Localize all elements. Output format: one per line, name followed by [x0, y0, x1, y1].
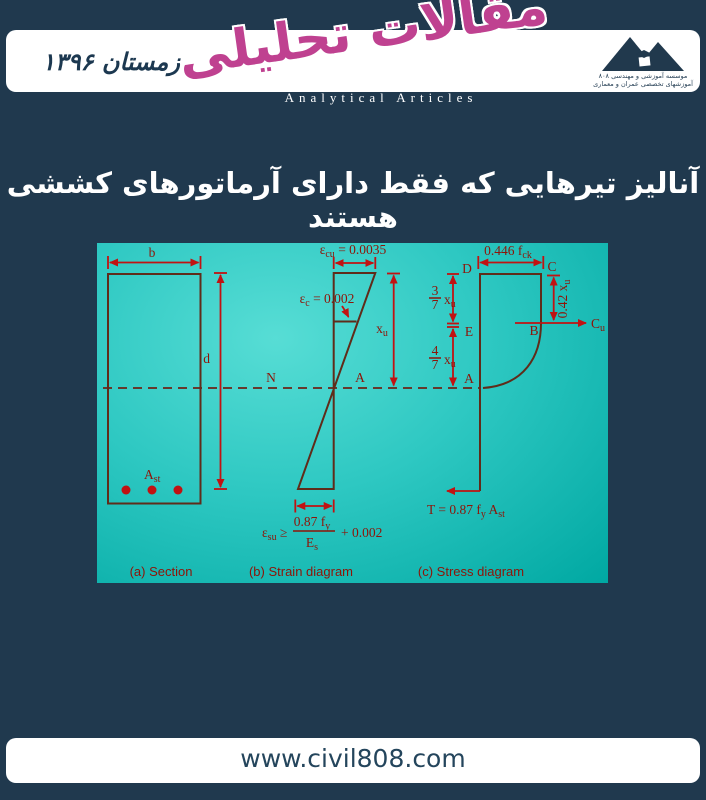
org-name-line2: آموزشهای تخصصی عمران و معماری — [584, 81, 702, 89]
esu-tail: + 0.002 — [341, 525, 382, 540]
cu-label: Cu — [591, 316, 605, 334]
xu-dimension — [387, 274, 400, 386]
d-point-label: D — [462, 261, 472, 276]
stress-caption: (c) Stress diagram — [418, 564, 524, 579]
article-title: آنالیز تیرهایی که فقط دارای آرماتورهای ک… — [0, 166, 706, 234]
esu-formula: εsu ≥ 0.87 fy Es + 0.002 — [262, 514, 382, 553]
ec-pointer-arrow — [342, 306, 349, 317]
strain-caption: (b) Strain diagram — [249, 564, 353, 579]
b-label: b — [149, 245, 156, 260]
rebar-dots — [122, 486, 183, 495]
n-point-label: N — [266, 370, 276, 385]
xu47-numerator: 4 — [432, 343, 439, 358]
t-label: T = 0.87 fy Ast — [427, 502, 505, 520]
section-caption: (a) Section — [130, 564, 193, 579]
stress-block-shape — [480, 274, 541, 491]
b-point-label: B — [529, 323, 538, 338]
d-label: d — [203, 351, 210, 366]
mountains-icon — [600, 33, 686, 73]
xu47-xu: xu — [444, 352, 456, 370]
esu-frac-numerator: 0.87 fy — [294, 514, 331, 532]
a-point-label-strain: A — [355, 370, 365, 385]
e-point-label: E — [465, 324, 473, 339]
xu47-label: 4 7 xu — [429, 343, 456, 372]
xu47-denominator: 7 — [432, 357, 439, 372]
esu-symbol: εsu ≥ — [262, 525, 287, 543]
civil808-logo: موسسه آموزشی و مهندسی ۸۰۸ آموزشهای تخصصی… — [584, 33, 702, 89]
ecu-dimension — [334, 257, 376, 269]
ecu-label: εcu = 0.0035 — [320, 243, 387, 260]
c-point-label: C — [547, 259, 556, 274]
xu37-xu: xu — [444, 292, 456, 310]
diagram-svg: b d Ast (a) Section εcu = 0.0035 εc = 0.… — [97, 243, 608, 583]
xu37-numerator: 3 — [432, 283, 439, 298]
ast-label: Ast — [144, 467, 161, 485]
ec-label: εc = 0.002 — [300, 291, 355, 309]
xu042-label: 0.42 xu — [555, 280, 573, 319]
fck-label: 0.446 fck — [484, 243, 532, 261]
issue-date: زمستان ۱۳۹۶ — [42, 40, 180, 84]
xu37-label: 3 7 xu — [429, 283, 456, 312]
xu37-denominator: 7 — [432, 297, 439, 312]
magazine-logo-subtitle: Analytical Articles — [28, 90, 706, 106]
xu-label: xu — [376, 321, 388, 339]
beam-analysis-diagram: b d Ast (a) Section εcu = 0.0035 εc = 0.… — [97, 243, 608, 583]
d-dimension — [214, 273, 227, 489]
a-point-label-stress: A — [464, 371, 474, 386]
esu-frac-denominator: Es — [306, 535, 318, 553]
esu-dimension — [295, 500, 333, 513]
website-url: www.civil808.com — [0, 744, 706, 773]
